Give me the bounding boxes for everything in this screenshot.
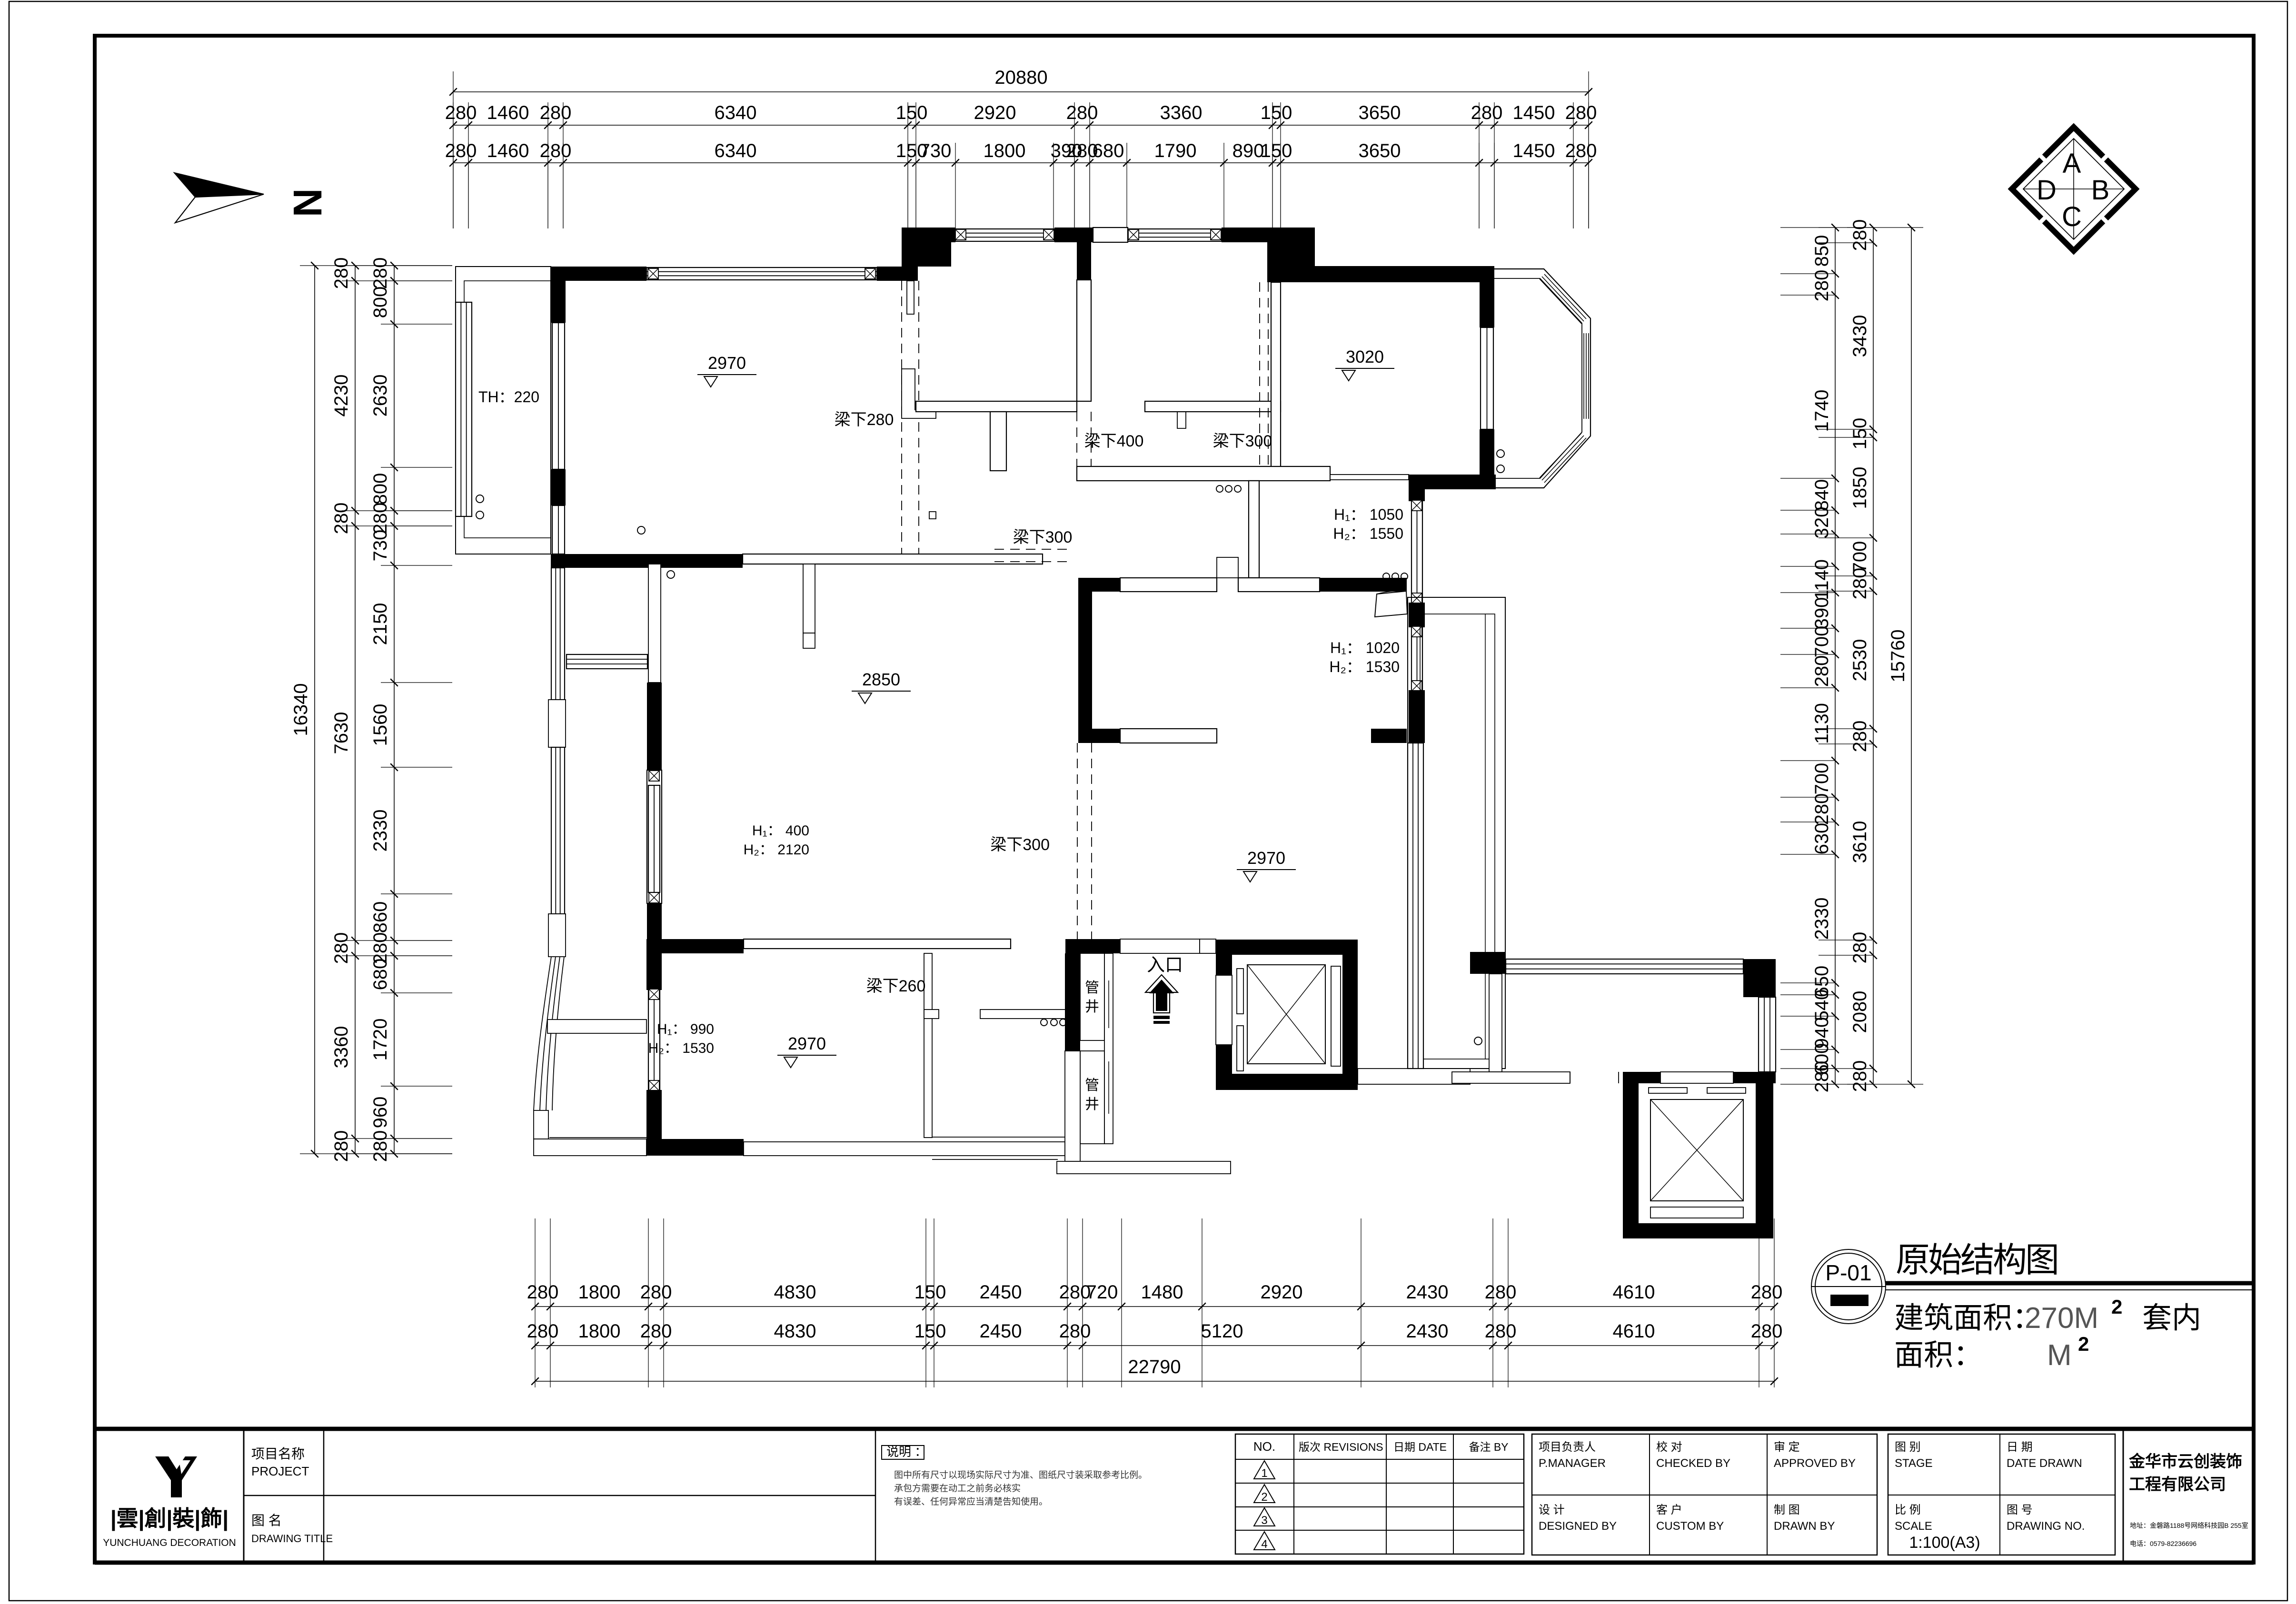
svg-text:井: 井 <box>1085 999 1099 1015</box>
svg-text:入口: 入口 <box>1147 955 1183 975</box>
svg-text:280: 280 <box>1811 655 1832 687</box>
svg-text:280: 280 <box>1811 793 1832 825</box>
svg-text:备注 BY: 备注 BY <box>1469 1441 1508 1453</box>
svg-text:280: 280 <box>370 503 391 535</box>
svg-text:2630: 2630 <box>370 375 391 417</box>
svg-text:800: 800 <box>370 473 391 505</box>
svg-text:2450: 2450 <box>980 1282 1022 1303</box>
svg-text:2850: 2850 <box>862 670 900 689</box>
svg-text:梁下400: 梁下400 <box>1084 432 1144 450</box>
svg-text:CHECKED BY: CHECKED BY <box>1656 1457 1730 1470</box>
svg-text:1140: 1140 <box>1811 559 1832 600</box>
svg-text:校 对: 校 对 <box>1656 1441 1682 1454</box>
svg-text:3: 3 <box>1261 1514 1267 1527</box>
svg-text:1460: 1460 <box>487 140 529 161</box>
svg-text:800: 800 <box>370 287 391 318</box>
svg-text:2: 2 <box>2078 1333 2089 1355</box>
svg-text:3360: 3360 <box>1160 102 1203 123</box>
svg-text:D: D <box>2037 175 2057 206</box>
svg-text:3650: 3650 <box>1359 140 1401 161</box>
svg-text:4: 4 <box>1261 1538 1267 1551</box>
svg-text:2970: 2970 <box>708 353 746 373</box>
svg-text:承包方需要在动工之前务必核实: 承包方需要在动工之前务必核实 <box>894 1483 1021 1494</box>
svg-text:1850: 1850 <box>1849 467 1870 509</box>
svg-text:280: 280 <box>1751 1282 1783 1303</box>
svg-text:H₁： 1020: H₁： 1020 <box>1330 639 1400 656</box>
svg-text:梁下300: 梁下300 <box>1213 432 1272 450</box>
svg-text:280: 280 <box>1849 932 1870 964</box>
svg-text:150: 150 <box>1261 140 1292 161</box>
svg-text:H₂： 1550: H₂： 1550 <box>1333 525 1403 542</box>
svg-text:1800: 1800 <box>578 1321 621 1342</box>
svg-text:|雲|創|裝|飾|: |雲|創|裝|飾| <box>110 1506 229 1531</box>
svg-text:280: 280 <box>527 1321 559 1342</box>
svg-text:SCALE: SCALE <box>1895 1520 1932 1533</box>
svg-text:图 号: 图 号 <box>2007 1504 2033 1516</box>
svg-text:1560: 1560 <box>370 704 391 746</box>
svg-text:1:100(A3): 1:100(A3) <box>1909 1534 1980 1552</box>
svg-text:280: 280 <box>540 102 572 123</box>
svg-text:5120: 5120 <box>1201 1321 1243 1342</box>
svg-text:1130: 1130 <box>1811 703 1832 744</box>
svg-text:150: 150 <box>914 1321 946 1342</box>
svg-text:1790: 1790 <box>1154 140 1197 161</box>
svg-text:2150: 2150 <box>370 603 391 645</box>
svg-text:3360: 3360 <box>331 1026 352 1069</box>
svg-text:原始结构图: 原始结构图 <box>1896 1241 2057 1279</box>
svg-text:1450: 1450 <box>1513 102 1555 123</box>
svg-text:说明 ：: 说明 ： <box>886 1445 927 1459</box>
svg-text:P.MANAGER: P.MANAGER <box>1539 1457 1606 1470</box>
svg-text:2: 2 <box>2111 1296 2122 1318</box>
svg-text:2430: 2430 <box>1406 1321 1449 1342</box>
svg-text:280: 280 <box>640 1282 672 1303</box>
svg-text:280: 280 <box>1565 140 1597 161</box>
svg-text:建筑面积：: 建筑面积： <box>1894 1302 2042 1335</box>
svg-text:审 定: 审 定 <box>1774 1441 1800 1454</box>
svg-text:管: 管 <box>1085 980 1099 996</box>
svg-text:日 期: 日 期 <box>2007 1441 2033 1454</box>
svg-text:P-01: P-01 <box>1825 1260 1871 1285</box>
svg-text:C: C <box>2062 201 2082 232</box>
svg-text:套内: 套内 <box>2142 1302 2201 1335</box>
svg-text:4610: 4610 <box>1613 1282 1655 1303</box>
svg-text:梁下260: 梁下260 <box>866 977 926 995</box>
svg-text:280: 280 <box>1066 102 1098 123</box>
svg-text:6340: 6340 <box>715 102 757 123</box>
svg-text:280: 280 <box>527 1282 559 1303</box>
svg-text:2330: 2330 <box>1811 898 1832 940</box>
svg-text:320: 320 <box>1811 507 1832 539</box>
svg-text:梁下300: 梁下300 <box>1013 528 1073 546</box>
svg-text:DATE DRAWN: DATE DRAWN <box>2007 1457 2082 1470</box>
svg-text:680: 680 <box>1093 140 1124 161</box>
svg-text:280: 280 <box>445 140 477 161</box>
svg-text:150: 150 <box>896 102 928 123</box>
svg-text:CUSTOM BY: CUSTOM BY <box>1656 1520 1724 1533</box>
svg-text:390: 390 <box>1811 597 1832 629</box>
svg-text:APPROVED BY: APPROVED BY <box>1774 1457 1856 1470</box>
svg-text:720: 720 <box>1086 1282 1118 1303</box>
svg-text:DRAWN BY: DRAWN BY <box>1774 1520 1835 1533</box>
svg-text:280: 280 <box>1811 1061 1832 1093</box>
svg-text:地址：金磐路1188号网络科技园B 255室: 地址：金磐路1188号网络科技园B 255室 <box>2130 1522 2248 1529</box>
svg-text:2080: 2080 <box>1849 991 1870 1033</box>
svg-text:版次 REVISIONS: 版次 REVISIONS <box>1299 1441 1383 1453</box>
svg-text:1800: 1800 <box>578 1282 621 1303</box>
svg-text:280: 280 <box>1471 102 1503 123</box>
svg-text:项目负责人: 项目负责人 <box>1539 1441 1596 1454</box>
svg-text:1800: 1800 <box>984 140 1026 161</box>
svg-text:280: 280 <box>1849 219 1870 251</box>
svg-text:3650: 3650 <box>1359 102 1401 123</box>
svg-text:630: 630 <box>1811 823 1832 855</box>
svg-text:图 名: 图 名 <box>251 1513 282 1528</box>
svg-text:2920: 2920 <box>1261 1282 1303 1303</box>
svg-text:制 图: 制 图 <box>1774 1504 1800 1516</box>
svg-text:280: 280 <box>540 140 572 161</box>
svg-text:1720: 1720 <box>370 1019 391 1061</box>
svg-text:16340: 16340 <box>290 683 311 736</box>
svg-text:280: 280 <box>370 1130 391 1162</box>
svg-text:N: N <box>285 188 330 218</box>
svg-text:700: 700 <box>1811 763 1832 795</box>
svg-text:4610: 4610 <box>1613 1321 1655 1342</box>
svg-text:2970: 2970 <box>1247 848 1285 868</box>
svg-text:M: M <box>2047 1339 2072 1372</box>
svg-text:280: 280 <box>370 257 391 289</box>
svg-text:860: 860 <box>370 901 391 933</box>
svg-text:1: 1 <box>1261 1467 1267 1480</box>
svg-text:梁下300: 梁下300 <box>990 836 1050 854</box>
svg-text:20880: 20880 <box>994 67 1047 88</box>
svg-text:项目名称: 项目名称 <box>251 1446 305 1461</box>
svg-text:TH：220: TH：220 <box>478 388 539 406</box>
svg-text:2530: 2530 <box>1849 639 1870 682</box>
svg-text:3430: 3430 <box>1849 315 1870 357</box>
svg-text:730: 730 <box>920 140 952 161</box>
svg-text:有误差、任何异常应当清楚告知使用。: 有误差、任何异常应当清楚告知使用。 <box>894 1496 1048 1507</box>
svg-text:280: 280 <box>1811 270 1832 302</box>
svg-text:STAGE: STAGE <box>1895 1457 1933 1470</box>
svg-text:280: 280 <box>1485 1282 1517 1303</box>
svg-text:150: 150 <box>914 1282 946 1303</box>
svg-text:H₂： 1530: H₂： 1530 <box>648 1040 714 1056</box>
svg-text:890: 890 <box>1232 140 1264 161</box>
svg-text:NO.: NO. <box>1253 1439 1275 1454</box>
svg-text:22790: 22790 <box>1128 1356 1181 1377</box>
svg-text:2330: 2330 <box>370 810 391 852</box>
svg-text:280: 280 <box>1565 102 1597 123</box>
svg-text:1740: 1740 <box>1811 390 1832 432</box>
svg-text:270M: 270M <box>2025 1302 2098 1335</box>
svg-text:280: 280 <box>445 102 477 123</box>
svg-text:DRAWING TITLE: DRAWING TITLE <box>251 1533 333 1545</box>
svg-text:A: A <box>2063 148 2081 179</box>
svg-text:280: 280 <box>1059 1321 1091 1342</box>
svg-text:H₁： 400: H₁： 400 <box>752 823 809 839</box>
svg-text:4230: 4230 <box>331 375 352 417</box>
svg-text:1480: 1480 <box>1141 1282 1183 1303</box>
svg-text:日期 DATE: 日期 DATE <box>1393 1441 1447 1453</box>
svg-text:管: 管 <box>1085 1078 1099 1093</box>
svg-text:15760: 15760 <box>1888 629 1908 682</box>
svg-text:H₁： 990: H₁： 990 <box>657 1021 714 1037</box>
svg-text:电话：0579-82236696: 电话：0579-82236696 <box>2130 1540 2197 1547</box>
svg-text:金华市云创装饰: 金华市云创装饰 <box>2128 1452 2242 1471</box>
svg-text:B: B <box>2091 175 2110 206</box>
svg-text:1450: 1450 <box>1513 140 1555 161</box>
svg-text:面积：: 面积： <box>1894 1339 1983 1372</box>
svg-text:280: 280 <box>331 1130 352 1162</box>
svg-text:680: 680 <box>370 959 391 990</box>
svg-text:280: 280 <box>331 503 352 535</box>
svg-text:工程有限公司: 工程有限公司 <box>2129 1475 2226 1494</box>
svg-text:PROJECT: PROJECT <box>251 1464 309 1478</box>
svg-text:2920: 2920 <box>974 102 1016 123</box>
svg-text:280: 280 <box>1485 1321 1517 1342</box>
svg-text:280: 280 <box>1849 721 1870 752</box>
svg-text:150: 150 <box>1849 418 1870 450</box>
svg-text:2450: 2450 <box>980 1321 1022 1342</box>
svg-text:DESIGNED BY: DESIGNED BY <box>1539 1520 1617 1533</box>
svg-text:比 例: 比 例 <box>1895 1504 1921 1516</box>
svg-text:1460: 1460 <box>487 102 529 123</box>
svg-text:DRAWING NO.: DRAWING NO. <box>2007 1520 2085 1533</box>
svg-text:7630: 7630 <box>331 712 352 754</box>
svg-text:图中所有尺寸以现场实际尺寸为准、图纸尺寸装采取参考比例。: 图中所有尺寸以现场实际尺寸为准、图纸尺寸装采取参考比例。 <box>894 1470 1147 1480</box>
svg-text:梁下280: 梁下280 <box>835 411 894 429</box>
svg-text:280: 280 <box>1849 568 1870 600</box>
svg-text:280: 280 <box>1751 1321 1783 1342</box>
svg-text:2970: 2970 <box>788 1034 826 1053</box>
svg-text:280: 280 <box>1849 1060 1870 1092</box>
svg-text:4830: 4830 <box>774 1321 816 1342</box>
svg-text:960: 960 <box>370 1097 391 1129</box>
svg-text:2430: 2430 <box>1406 1282 1449 1303</box>
svg-text:图 别: 图 别 <box>1895 1441 1921 1454</box>
svg-text:6340: 6340 <box>715 140 757 161</box>
svg-text:4830: 4830 <box>774 1282 816 1303</box>
svg-text:客 户: 客 户 <box>1656 1504 1682 1516</box>
svg-text:3610: 3610 <box>1849 821 1870 863</box>
svg-text:YUNCHUANG DECORATION: YUNCHUANG DECORATION <box>103 1537 236 1548</box>
svg-text:H₂： 2120: H₂： 2120 <box>744 842 809 858</box>
svg-text:280: 280 <box>331 932 352 964</box>
svg-text:280: 280 <box>331 257 352 289</box>
svg-text:设 计: 设 计 <box>1539 1504 1565 1516</box>
svg-text:井: 井 <box>1085 1097 1099 1112</box>
svg-text:850: 850 <box>1811 235 1832 267</box>
svg-text:H₁： 1050: H₁： 1050 <box>1334 506 1403 523</box>
svg-text:3020: 3020 <box>1346 347 1384 366</box>
svg-text:H₂： 1530: H₂： 1530 <box>1329 658 1400 675</box>
svg-text:150: 150 <box>1261 102 1292 123</box>
svg-text:700: 700 <box>1811 626 1832 658</box>
svg-text:280: 280 <box>640 1321 672 1342</box>
svg-text:730: 730 <box>370 530 391 562</box>
svg-text:840: 840 <box>1811 479 1832 511</box>
svg-text:2: 2 <box>1261 1491 1267 1504</box>
